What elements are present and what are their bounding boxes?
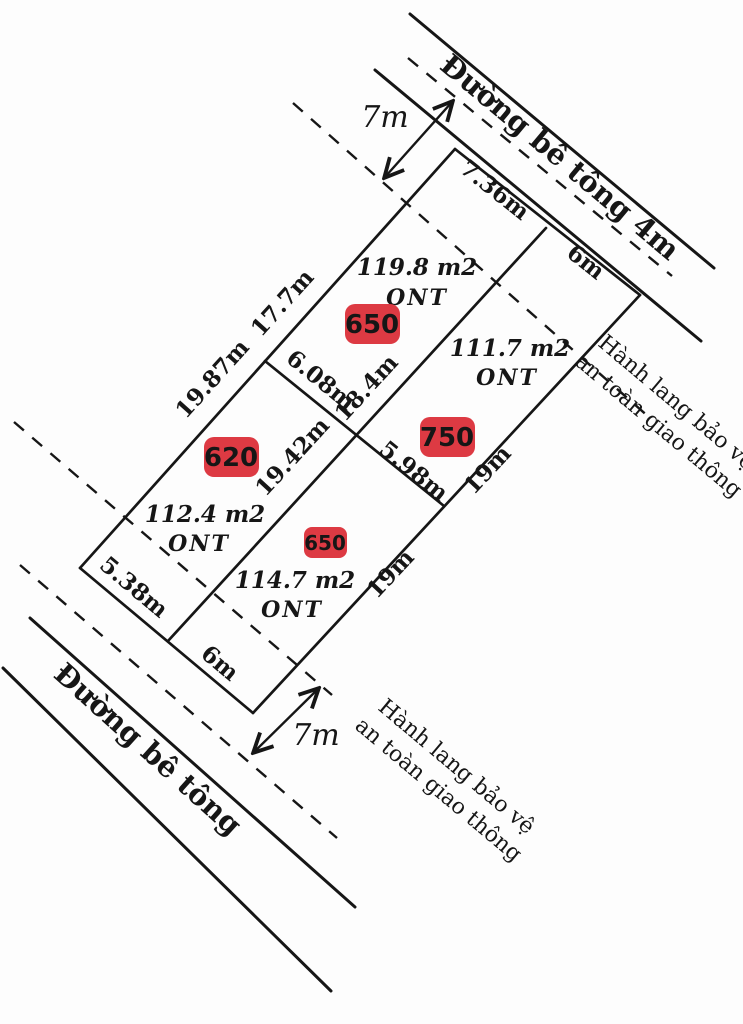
plot-d-price-text: 650 (304, 531, 346, 555)
dim-plot-d-frontage: 6m (196, 640, 244, 687)
dim-plot-d-right: 19m (361, 544, 419, 604)
plot-a-price-text: 650 (345, 310, 399, 340)
plot-b-land-use: ONT (476, 365, 538, 391)
plot-a: 119.8 m2 ONT 650 (345, 254, 477, 344)
plot-b-area: 111.7 m2 (450, 335, 570, 362)
plot-map-canvas: Đường bê tông 4m 7m 7.36m 6m 17.7m 19.87… (0, 0, 743, 1024)
top-road-centerline-dashed (408, 58, 672, 276)
parcel-boundaries (80, 149, 640, 713)
plot-d-area: 114.7 m2 (235, 567, 355, 594)
plot-d-land-use: ONT (261, 597, 323, 623)
plot-c-area: 112.4 m2 (145, 501, 265, 528)
plot-c-land-use: ONT (168, 531, 230, 557)
corridor-note-top: Hành lang bảo vệ an toàn giao thông (570, 330, 743, 503)
column-divider-line (168, 228, 546, 641)
dim-plot-a-left: 17.7m (246, 264, 320, 342)
dim-plot-a-frontage: 7.36m (455, 155, 535, 226)
dim-plot-c-left: 19.87m (170, 334, 255, 424)
dim-plot-b-frontage: 6m (561, 239, 609, 285)
bottom-setback-label: 7m (292, 718, 340, 753)
dim-divider-cd: 19.42m (250, 412, 335, 501)
plot-a-area: 119.8 m2 (357, 254, 477, 281)
plot-d: 650 114.7 m2 ONT (235, 527, 355, 623)
bottom-road-lower-edge-line (3, 668, 331, 991)
top-setback-label: 7m (361, 100, 409, 135)
plot-b-price-text: 750 (420, 423, 474, 453)
corridor-note-bottom: Hành lang bảo vệ an toàn giao thông (350, 694, 540, 867)
land-plot-diagram: Đường bê tông 4m 7m 7.36m 6m 17.7m 19.87… (0, 0, 743, 1024)
plot-c: 620 112.4 m2 ONT (145, 437, 265, 557)
left-boundary-line (80, 149, 455, 568)
plot-c-price-text: 620 (204, 443, 258, 473)
